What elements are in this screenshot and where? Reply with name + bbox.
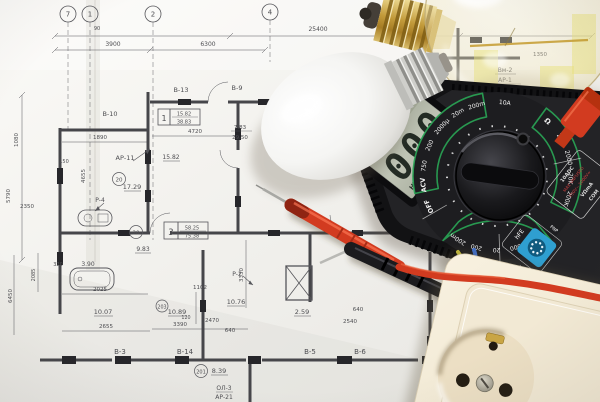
vignette xyxy=(0,0,600,402)
photo-scene: 7 1 2 4 25400 3900 6300 90 1080 5790 235… xyxy=(0,0,600,402)
scene-canvas: 7 1 2 4 25400 3900 6300 90 1080 5790 235… xyxy=(0,0,600,402)
